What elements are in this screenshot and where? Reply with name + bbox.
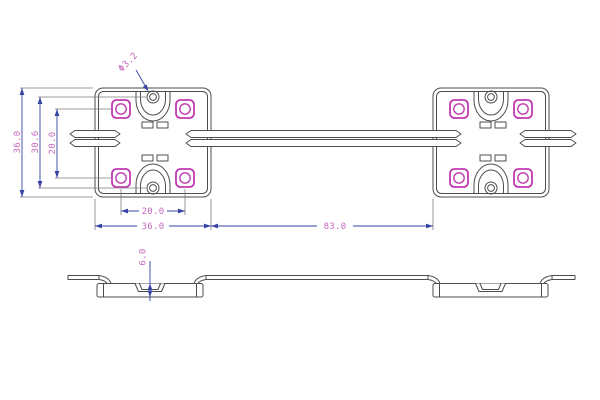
dimension-hole-diameter: Φ3.2 <box>117 51 149 92</box>
wire-middle-upper <box>186 131 461 138</box>
side-right-flange <box>552 276 575 280</box>
dimension-label-module-width: 36.0 <box>142 222 165 232</box>
dimension-label-module-thickness: 6.0 <box>139 248 149 265</box>
wire-left-stub-upper <box>70 131 120 138</box>
wire-right-stub-upper <box>520 131 576 138</box>
side-left-flange <box>68 276 99 280</box>
side-view: 6.0 <box>68 248 575 301</box>
dimension-label-led-pitch-horizontal: 20.0 <box>142 207 165 217</box>
dimension-wire-span: 83.0 <box>211 199 433 232</box>
dimension-label-led-pitch-vertical: 20.0 <box>48 132 58 155</box>
dimension-label-wire-span: 83.0 <box>324 222 347 232</box>
technical-drawing: 36.0 30.6 20.0 20.0 36.0 <box>0 0 600 400</box>
dimension-label-hole-pitch: 30.6 <box>31 131 41 154</box>
side-connecting-strip <box>206 276 428 280</box>
wire-right-stub-lower <box>520 140 576 147</box>
dimension-label-module-height: 36.0 <box>13 131 23 154</box>
top-view: 36.0 30.6 20.0 20.0 36.0 <box>13 51 576 232</box>
wire-left-stub-lower <box>70 140 120 147</box>
side-flanges <box>68 276 575 284</box>
wire-middle-lower <box>186 140 461 147</box>
